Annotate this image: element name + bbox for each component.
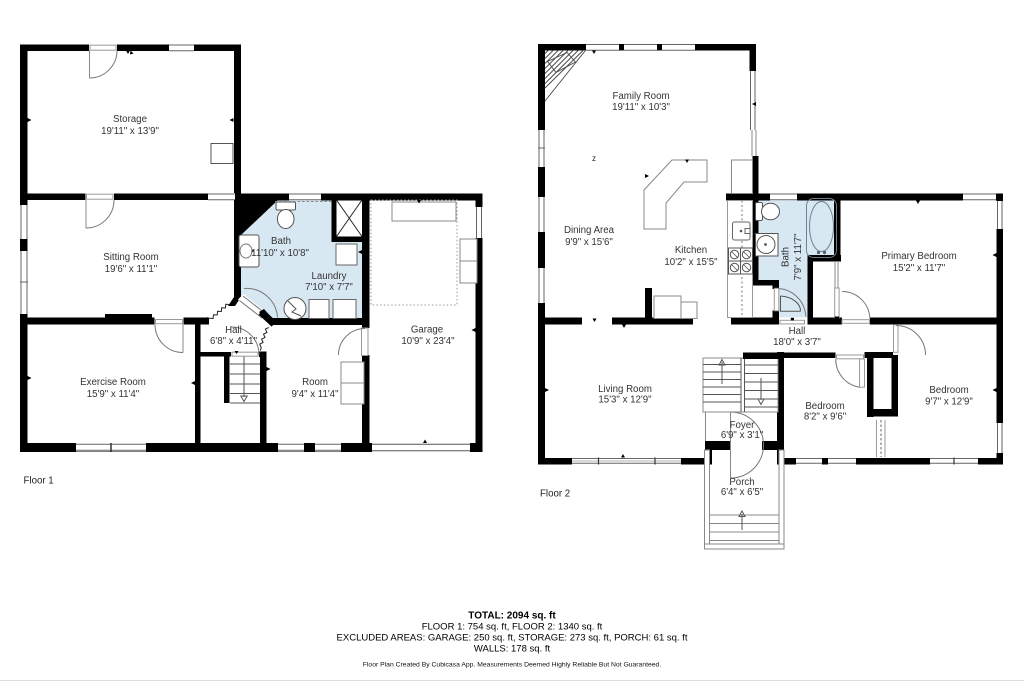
svg-text:Hall: Hall: [789, 326, 806, 337]
svg-text:7'10" x 7'7": 7'10" x 7'7": [305, 282, 353, 293]
svg-text:z: z: [592, 154, 596, 163]
svg-text:Floor 2: Floor 2: [540, 489, 570, 500]
svg-text:18'0" x 3'7": 18'0" x 3'7": [773, 337, 821, 348]
svg-text:WALLS: 178 sq. ft: WALLS: 178 sq. ft: [474, 644, 551, 655]
svg-text:EXCLUDED AREAS: GARAGE: 250 sq: EXCLUDED AREAS: GARAGE: 250 sq. ft, STOR…: [337, 633, 688, 644]
svg-text:19'11" x 10'3": 19'11" x 10'3": [612, 102, 670, 113]
svg-text:8'2" x 9'6": 8'2" x 9'6": [804, 412, 847, 423]
svg-text:Family Room: Family Room: [612, 91, 669, 102]
svg-text:Floor Plan Created By Cubicasa: Floor Plan Created By Cubicasa App. Meas…: [363, 662, 662, 669]
svg-text:Bedroom: Bedroom: [805, 401, 844, 412]
svg-text:Bath: Bath: [271, 236, 291, 247]
svg-text:7'9" x 11'7": 7'9" x 11'7": [793, 233, 804, 281]
svg-text:11'10" x 10'8": 11'10" x 10'8": [251, 248, 309, 259]
svg-text:10'2" x 15'5": 10'2" x 15'5": [664, 257, 718, 268]
svg-text:10'9" x 23'4": 10'9" x 23'4": [401, 336, 455, 347]
svg-text:Laundry: Laundry: [311, 271, 346, 282]
svg-text:9'7" x 12'9": 9'7" x 12'9": [925, 397, 973, 408]
svg-text:Room: Room: [302, 377, 328, 388]
svg-text:Dining Area: Dining Area: [564, 225, 615, 236]
svg-text:19'11" x 13'9": 19'11" x 13'9": [101, 126, 159, 137]
svg-text:Sitting Room: Sitting Room: [103, 252, 158, 263]
svg-text:Exercise Room: Exercise Room: [80, 377, 146, 388]
svg-text:TOTAL: 2094 sq. ft: TOTAL: 2094 sq. ft: [468, 611, 556, 622]
svg-text:Living Room: Living Room: [598, 384, 652, 395]
svg-text:Bedroom: Bedroom: [929, 385, 968, 396]
svg-text:Garage: Garage: [411, 325, 443, 336]
svg-text:Primary Bedroom: Primary Bedroom: [881, 251, 956, 262]
svg-text:15'9" x 11'4": 15'9" x 11'4": [87, 389, 140, 400]
svg-text:6'8" x 4'11": 6'8" x 4'11": [210, 336, 258, 347]
svg-text:15'2" x 11'7": 15'2" x 11'7": [893, 263, 946, 274]
svg-text:9'4" x 11'4": 9'4" x 11'4": [291, 389, 339, 400]
svg-text:6'9" x 3'1": 6'9" x 3'1": [721, 430, 764, 441]
svg-text:FLOOR 1: 754 sq. ft, FLOOR 2:: FLOOR 1: 754 sq. ft, FLOOR 2: 1340 sq. f…: [422, 622, 603, 633]
svg-text:9'9" x 15'6": 9'9" x 15'6": [565, 237, 613, 248]
svg-text:Bath: Bath: [781, 247, 792, 267]
svg-text:15'3" x 12'9": 15'3" x 12'9": [598, 395, 652, 406]
svg-text:Storage: Storage: [113, 114, 147, 125]
svg-text:6'4" x 6'5": 6'4" x 6'5": [721, 487, 764, 498]
svg-text:Kitchen: Kitchen: [675, 245, 707, 256]
svg-text:Hall: Hall: [225, 325, 242, 336]
svg-text:19'6" x 11'1": 19'6" x 11'1": [105, 264, 158, 275]
svg-text:Floor 1: Floor 1: [24, 476, 54, 487]
